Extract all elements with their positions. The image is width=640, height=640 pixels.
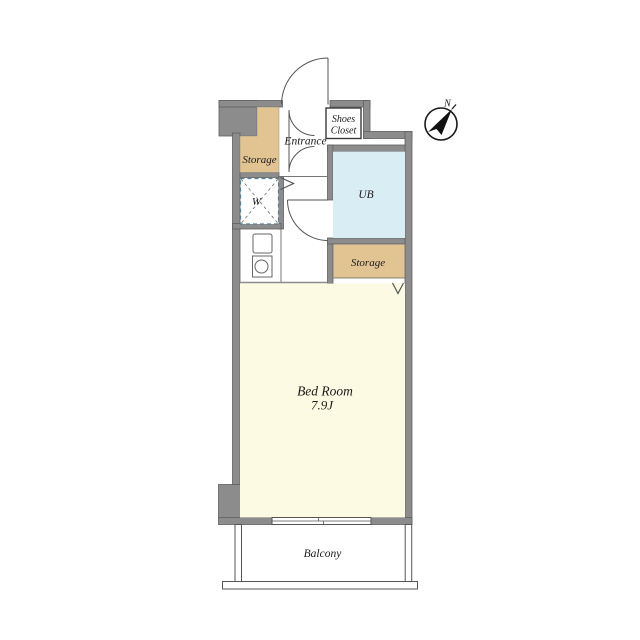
- wall-stub-hall-left: [279, 177, 284, 230]
- wall-ub-left-lower: [328, 241, 334, 284]
- balcony-rail-front: [223, 582, 418, 590]
- bedroom-size-label: 7.9J: [311, 398, 334, 413]
- balcony-label: Balcony: [304, 548, 343, 560]
- wall-storage-divider: [240, 173, 279, 178]
- bedroom-window: [272, 518, 371, 525]
- storage-right-label: Storage: [351, 257, 385, 269]
- wall-ub-top: [328, 145, 406, 152]
- compass-north-label: N: [443, 99, 452, 110]
- unit-bath-label: UB: [358, 189, 373, 201]
- entrance-label: Entrance: [283, 136, 326, 148]
- bedroom-label: Bed Room: [297, 384, 353, 399]
- balcony-rail-right: [405, 525, 412, 582]
- storage-left-label: Storage: [242, 154, 276, 166]
- shoes-closet-label-line1: Shoes: [332, 114, 355, 125]
- washer-label: W: [252, 196, 262, 208]
- wall-right: [405, 132, 412, 525]
- wall-ub-bottom: [328, 238, 406, 244]
- wall-ub-left-upper: [328, 145, 334, 200]
- balcony-rail-left: [235, 525, 242, 582]
- floor-plan-drawing: N Storage Entrance Shoes Closet UB W Sto…: [0, 0, 640, 640]
- wall-top-left-segment: [219, 101, 283, 108]
- wall-left: [233, 133, 241, 518]
- floor-plan-page: N Storage Entrance Shoes Closet UB W Sto…: [0, 0, 640, 640]
- shoes-closet-label-line2: Closet: [331, 126, 357, 137]
